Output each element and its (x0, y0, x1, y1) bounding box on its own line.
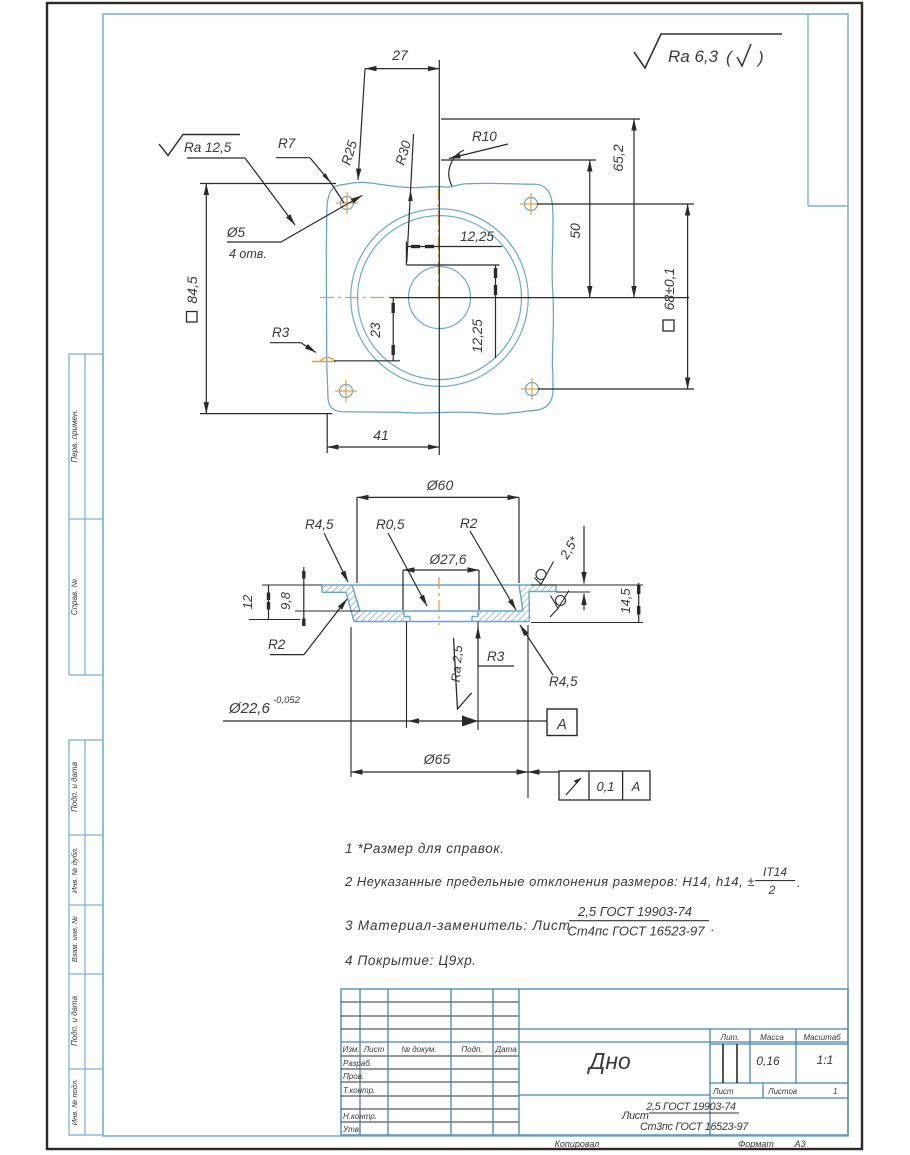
svg-text:Копировал: Копировал (555, 1139, 600, 1149)
svg-text:Подп.: Подп. (461, 1045, 482, 1054)
svg-text:Перв. примен.: Перв. примен. (70, 409, 79, 462)
svg-text:2,5 ГОСТ 19903-74: 2,5 ГОСТ 19903-74 (577, 904, 692, 919)
svg-text:Ø22,6: Ø22,6 (228, 700, 271, 717)
svg-text:Листов: Листов (767, 1087, 797, 1096)
svg-text:Утв.: Утв. (342, 1125, 361, 1134)
svg-text:1 *Размер для справок.: 1 *Размер для справок. (345, 841, 505, 856)
svg-text:Ø5: Ø5 (226, 225, 246, 240)
svg-text:.: . (797, 875, 801, 890)
svg-text:2,5 ГОСТ 19903-74: 2,5 ГОСТ 19903-74 (645, 1101, 736, 1113)
svg-text:Ø65: Ø65 (423, 751, 451, 767)
svg-text:Инв. № подл.: Инв. № подл. (70, 1079, 79, 1126)
svg-text:Ø60: Ø60 (426, 477, 454, 493)
svg-text:84,5: 84,5 (184, 276, 200, 303)
svg-text:Дно: Дно (586, 1048, 631, 1074)
svg-text:27: 27 (391, 47, 409, 63)
svg-text:Ra 2,5: Ra 2,5 (449, 645, 466, 683)
svg-text:А: А (631, 779, 641, 794)
svg-text:№ докум.: № докум. (401, 1045, 436, 1054)
svg-text:IT14: IT14 (763, 865, 787, 879)
svg-text:Лист: Лист (712, 1087, 734, 1096)
svg-text:4 отв.: 4 отв. (229, 247, 267, 261)
svg-text:0,1: 0,1 (596, 779, 614, 794)
svg-text:R4,5: R4,5 (549, 674, 578, 689)
svg-text:Ra 12,5: Ra 12,5 (184, 140, 232, 155)
svg-text:R7: R7 (278, 136, 296, 151)
svg-text:Дата: Дата (494, 1045, 517, 1054)
svg-text:Формат: Формат (738, 1139, 774, 1149)
svg-text:Справ. №: Справ. № (70, 578, 79, 615)
svg-text:R2: R2 (460, 516, 478, 531)
svg-text:Лит.: Лит. (720, 1033, 740, 1042)
svg-text:4 Покрытие: Ц9хр.: 4 Покрытие: Ц9хр. (345, 953, 477, 968)
svg-text:R0,5: R0,5 (376, 517, 405, 532)
svg-text:65,2: 65,2 (610, 144, 626, 171)
svg-text:R3: R3 (487, 649, 505, 664)
svg-text:А3: А3 (793, 1139, 805, 1149)
svg-text:1: 1 (833, 1087, 837, 1096)
svg-text:Инв. № дубл.: Инв. № дубл. (70, 847, 79, 893)
svg-text:Ø27,6: Ø27,6 (429, 552, 467, 567)
svg-text:14,5: 14,5 (618, 588, 633, 614)
svg-text:Подп. и дата: Подп. и дата (70, 761, 79, 812)
svg-text:12,25: 12,25 (460, 229, 494, 244)
svg-text:R10: R10 (472, 129, 497, 144)
svg-text:23: 23 (368, 322, 383, 339)
svg-text:12: 12 (240, 594, 255, 609)
svg-text:1:1: 1:1 (817, 1053, 834, 1067)
svg-text:41: 41 (373, 427, 389, 443)
svg-text:2: 2 (768, 883, 776, 897)
svg-text:9,8: 9,8 (278, 591, 293, 610)
svg-text:Т.контр.: Т.контр. (343, 1086, 375, 1095)
svg-text:-0,052: -0,052 (273, 695, 301, 706)
svg-text:Взам. инв. №: Взам. инв. № (70, 916, 79, 962)
svg-text:.: . (711, 919, 715, 934)
svg-text:12,25: 12,25 (470, 319, 485, 353)
svg-text:Н.контр.: Н.контр. (343, 1112, 377, 1121)
svg-text:Изм.: Изм. (342, 1045, 359, 1054)
svg-text:Лист: Лист (363, 1045, 385, 1054)
svg-text:А: А (556, 717, 567, 733)
svg-text:Пров.: Пров. (343, 1072, 364, 1081)
svg-text:50: 50 (567, 223, 583, 239)
svg-text:0,16: 0,16 (756, 1054, 780, 1068)
svg-text:R4,5: R4,5 (305, 517, 334, 532)
svg-text:Разраб.: Разраб. (343, 1059, 372, 1068)
svg-text:Ст4пс ГОСТ 16523-97: Ст4пс ГОСТ 16523-97 (568, 924, 706, 939)
svg-text:R2: R2 (268, 637, 286, 652)
svg-text:Ст3пс ГОСТ 16523-97: Ст3пс ГОСТ 16523-97 (640, 1121, 749, 1133)
svg-text:3 Материал-заменитель: Лист: 3 Материал-заменитель: Лист (345, 918, 571, 933)
svg-text:Масштаб: Масштаб (803, 1033, 841, 1042)
svg-text:2 Неуказанные предельные откл: 2 Неуказанные предельные отклонения разм… (344, 874, 755, 889)
svg-text:Масса: Масса (760, 1033, 784, 1042)
svg-text:68±0,1: 68±0,1 (661, 268, 677, 311)
svg-text:R3: R3 (272, 325, 290, 340)
svg-text:Ra 6,3: Ra 6,3 (668, 47, 719, 66)
svg-text:): ) (756, 48, 764, 67)
svg-text:Подп. и дата: Подп. и дата (70, 995, 79, 1046)
